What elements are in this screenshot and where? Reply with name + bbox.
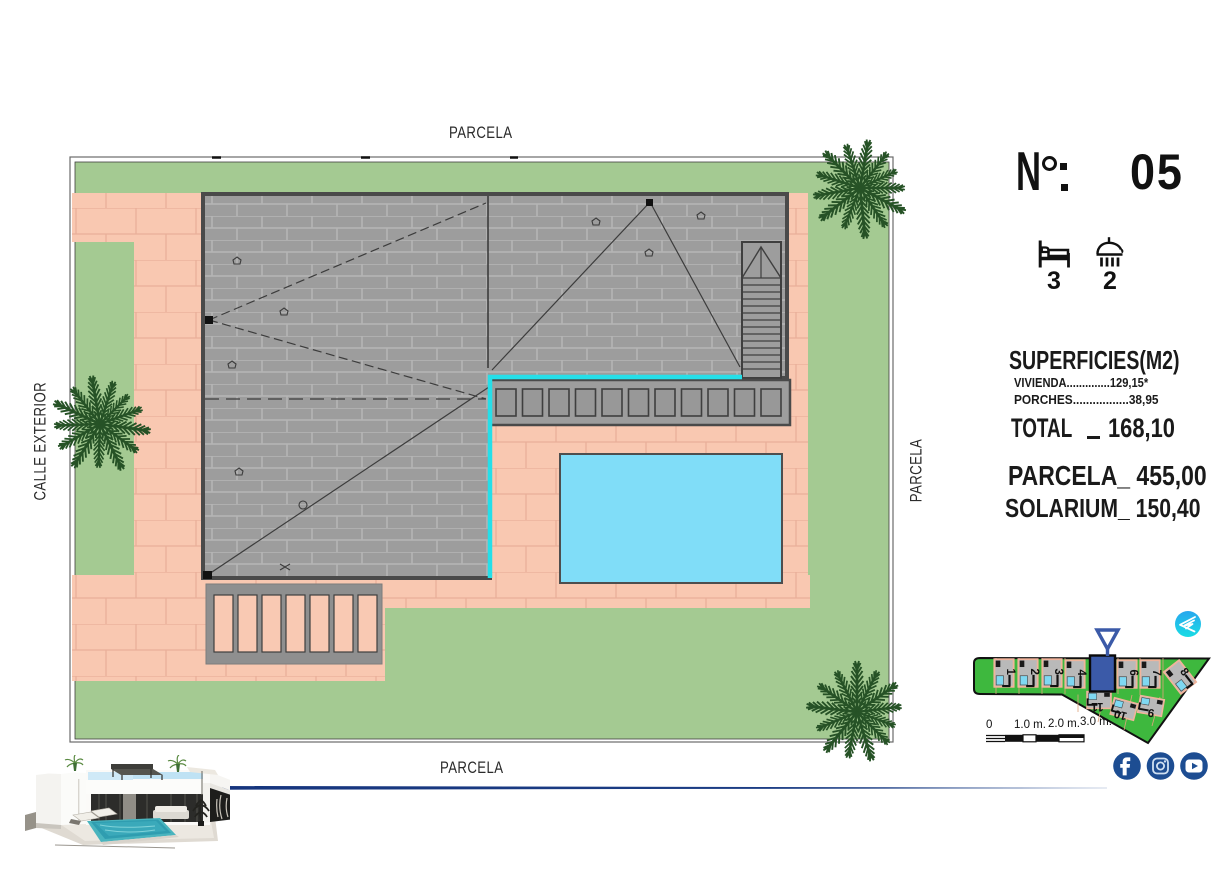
svg-text:7: 7 — [1150, 670, 1162, 676]
svg-text:4: 4 — [1075, 670, 1087, 677]
svg-text:6: 6 — [1127, 670, 1139, 676]
svg-text:2: 2 — [1028, 669, 1040, 675]
svg-text:3: 3 — [1052, 669, 1064, 675]
svg-text:11: 11 — [1091, 700, 1104, 712]
svg-text:1: 1 — [1004, 669, 1016, 676]
